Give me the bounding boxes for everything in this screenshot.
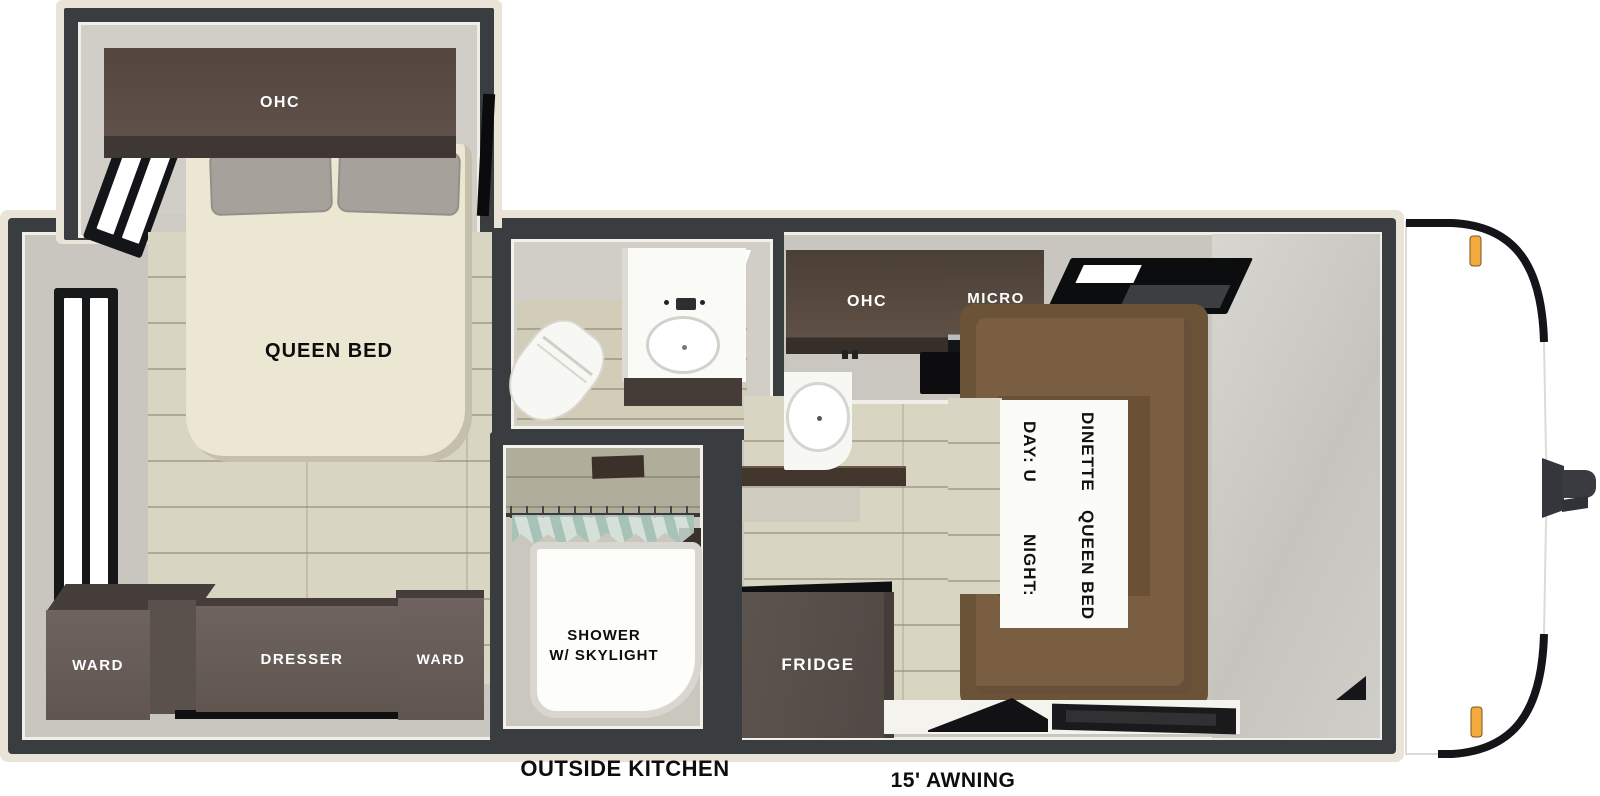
shower-label-line2: W/ SKYLIGHT bbox=[506, 646, 702, 666]
bedroom-window-icon bbox=[54, 288, 118, 622]
kitchen-step bbox=[742, 486, 860, 522]
floorplan-canvas: QUEEN BED OHC WARD DRESSER WARD SH bbox=[0, 0, 1600, 796]
dinette-footwell bbox=[948, 398, 1002, 594]
dinette-label: DAY: U DINETTE NIGHT: QUEEN BED bbox=[1000, 400, 1128, 628]
window-pane bbox=[64, 298, 82, 612]
front-cap-shell bbox=[1406, 222, 1547, 754]
hitch-bracket-icon bbox=[1542, 458, 1564, 518]
floor-register-inset bbox=[1066, 710, 1216, 726]
ward-corner bbox=[148, 600, 202, 714]
ward-left-label: WARD bbox=[72, 657, 124, 674]
ward-left: WARD bbox=[46, 610, 150, 720]
floor-register bbox=[1052, 704, 1236, 735]
shower-label-line1: SHOWER bbox=[506, 626, 702, 646]
shower-label: SHOWER W/ SKYLIGHT bbox=[506, 626, 702, 666]
pillow bbox=[209, 148, 333, 216]
kitchen-ohc-cabinet: OHC bbox=[786, 250, 948, 354]
roof-vent-opening bbox=[1075, 265, 1141, 283]
vanity-base bbox=[624, 378, 742, 406]
outside-kitchen-label: OUTSIDE KITCHEN bbox=[450, 756, 800, 782]
sink-drain bbox=[682, 345, 687, 350]
fridge-label: FRIDGE bbox=[781, 655, 854, 675]
dinette-label-line2: NIGHT: QUEEN BED bbox=[1000, 503, 1128, 628]
awning-label: 15' AWNING bbox=[848, 769, 1058, 793]
queen-bed-label: QUEEN BED bbox=[186, 340, 472, 363]
dresser-label: DRESSER bbox=[260, 651, 343, 668]
hitch-coupler-icon bbox=[1562, 470, 1596, 498]
marker-light-top-icon bbox=[1470, 236, 1481, 266]
bedroom-ohc-label: OHC bbox=[260, 94, 300, 112]
pillow bbox=[337, 148, 461, 216]
bedroom-ohc-cabinet: OHC bbox=[104, 48, 456, 158]
ward-right-label: WARD bbox=[417, 651, 466, 667]
ward-right: WARD bbox=[398, 598, 484, 720]
dinette-label-line1: DAY: U DINETTE bbox=[1000, 400, 1128, 503]
kitchen-ohc-label: OHC bbox=[847, 293, 887, 311]
window-pane bbox=[90, 298, 108, 612]
sink-drain bbox=[817, 416, 822, 421]
marker-light-bottom-icon bbox=[1471, 707, 1482, 737]
kitchen-sink-icon bbox=[786, 382, 850, 452]
faucet-handle bbox=[664, 300, 669, 305]
kitchen-faucet-icon bbox=[852, 350, 858, 359]
faucet-handle bbox=[700, 300, 705, 305]
kitchen-faucet-icon bbox=[842, 350, 848, 359]
hitch-jaw-icon bbox=[1562, 496, 1588, 512]
fridge: FRIDGE bbox=[742, 592, 894, 738]
dresser: DRESSER bbox=[196, 606, 408, 712]
front-cap bbox=[1396, 210, 1600, 766]
bathroom-sink-icon bbox=[646, 316, 720, 374]
shower-cabinet bbox=[592, 455, 645, 479]
faucet-icon bbox=[676, 298, 696, 310]
front-interior-wall bbox=[1212, 234, 1380, 738]
